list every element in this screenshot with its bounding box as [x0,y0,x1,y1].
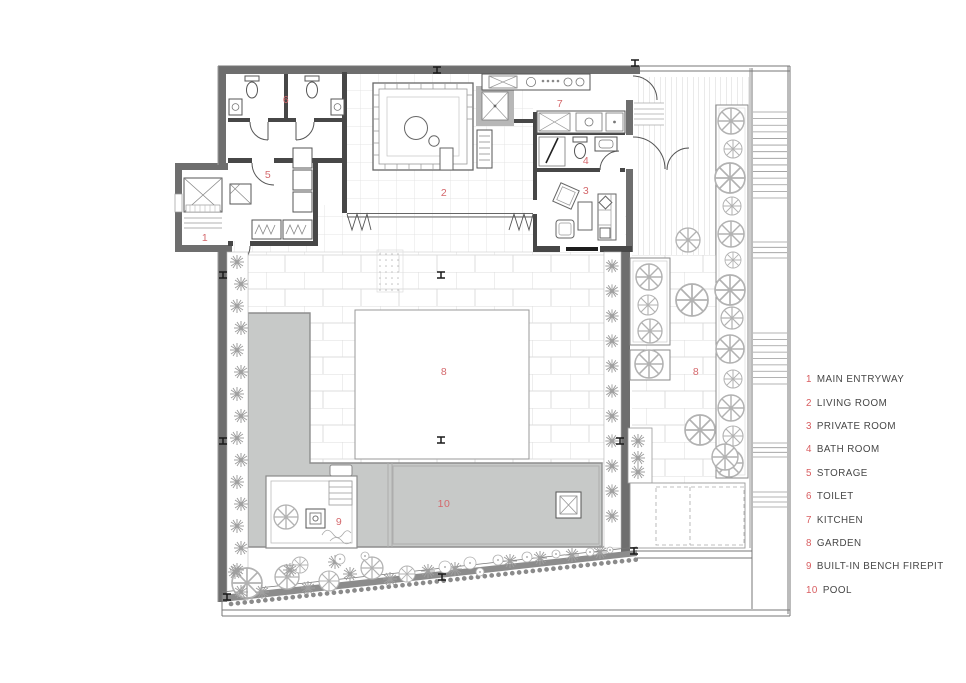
firepit-steps [329,481,352,505]
elevator-icon [184,178,222,212]
coffee-table [578,202,592,230]
sink-icon [595,137,617,151]
legend-item-number: 2 [806,398,812,409]
sunken-lounge [373,83,473,170]
room-label-kitchen: 7 [557,98,563,110]
door-arc [296,122,314,140]
room-label-garden-east: 8 [693,366,699,378]
legend-item: 4BATH ROOM [806,438,944,461]
fireplace-chimney [476,86,514,126]
sink-icon [331,99,344,115]
room-label-bath-room: 4 [583,155,589,167]
entry-window [175,194,182,212]
room-label-storage: 5 [265,169,271,181]
legend-item-number: 4 [806,444,812,455]
legend-item: 5STORAGE [806,462,944,485]
legend-item: 2LIVING ROOM [806,391,944,414]
pool-bench [330,465,352,476]
bath-room [537,135,625,170]
round-table [405,117,428,140]
legend-item: 10POOL [806,579,944,602]
legend-item: 3PRIVATE ROOM [806,415,944,438]
legend-item-number: 9 [806,561,812,572]
room-label-garden-court: 8 [441,366,447,378]
firepit-icon [306,509,325,528]
legend-item-label: KITCHEN [817,515,863,526]
legend-item-label: LIVING ROOM [817,398,887,409]
toilet-icon [305,76,319,98]
legend-item-number: 5 [806,468,812,479]
room-label-living-room: 2 [441,187,447,199]
radiator [477,130,492,168]
legend-item: 7KITCHEN [806,508,944,531]
legend-item-label: MAIN ENTRYWAY [817,374,904,385]
room-label-main-entryway: 1 [202,232,208,244]
floorplan-page: 1 2 3 4 5 6 7 8 8 9 10 1MAIN ENTRYWAY2LI… [0,0,966,683]
legend-item-label: BATH ROOM [817,444,880,455]
kitchen-island [537,111,625,133]
legend-item: 8GARDEN [806,532,944,555]
stairs [752,66,788,614]
legend-item-number: 8 [806,538,812,549]
legend-item-number: 6 [806,491,812,502]
sofa [598,194,616,240]
legend-item-number: 3 [806,421,812,432]
legend-item: 6TOILET [806,485,944,508]
legend-item: 1MAIN ENTRYWAY [806,368,944,391]
side-table [440,148,453,170]
legend-item-label: POOL [823,585,852,596]
carport-court [630,483,745,548]
legend-item-label: STORAGE [817,468,868,479]
room-label-firepit: 9 [336,516,342,528]
legend-item-label: TOILET [817,491,854,502]
room-label-private-room: 3 [583,185,589,197]
private-room [537,172,625,246]
round-table-small [429,136,439,146]
legend-item-number: 10 [806,585,818,596]
deck-steps [634,103,664,125]
toilet-icon [245,76,259,98]
sliding-door-bar [566,247,598,251]
legend-item-label: GARDEN [817,538,862,549]
legend-item-number: 1 [806,374,812,385]
door-arc [250,122,268,140]
legend-item-label: PRIVATE ROOM [817,421,896,432]
pool-skimmer-icon [556,492,581,518]
room-label-toilet: 6 [283,94,289,106]
room-label-pool: 10 [438,498,451,510]
legend: 1MAIN ENTRYWAY2LIVING ROOM3PRIVATE ROOM4… [806,368,944,602]
legend-item-label: BUILT-IN BENCH FIREPIT [817,561,944,572]
sink-icon [229,99,242,115]
legend-item: 9BUILT-IN BENCH FIREPIT [806,555,944,578]
legend-item-number: 7 [806,515,812,526]
